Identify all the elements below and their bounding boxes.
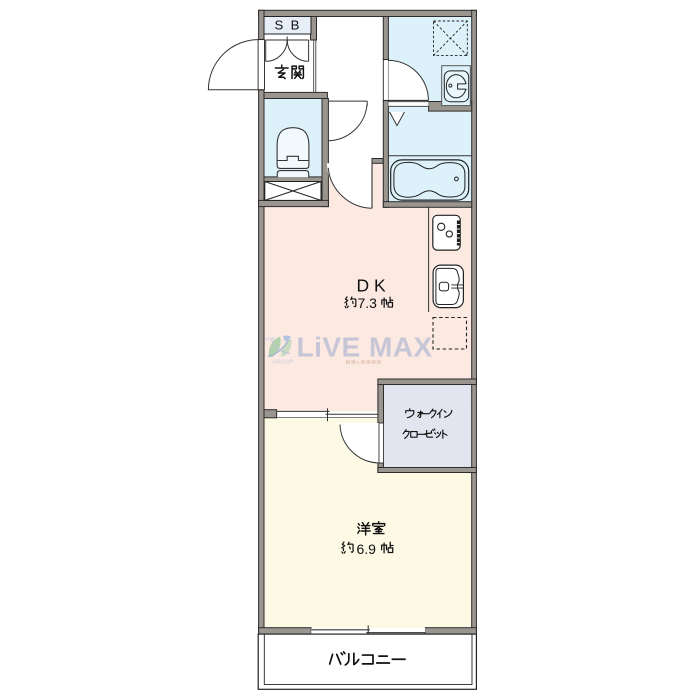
- svg-text:7.3: 7.3: [358, 295, 378, 311]
- svg-text:B: B: [291, 17, 300, 32]
- svg-text:GROUP: GROUP: [273, 360, 294, 366]
- svg-text:S: S: [275, 17, 284, 32]
- svg-text:K: K: [374, 276, 386, 296]
- svg-text:6.9: 6.9: [357, 541, 377, 557]
- svg-text:D: D: [357, 276, 370, 296]
- svg-text:LIVE: LIVE: [266, 336, 276, 341]
- svg-text:LiVE MAX: LiVE MAX: [297, 332, 433, 363]
